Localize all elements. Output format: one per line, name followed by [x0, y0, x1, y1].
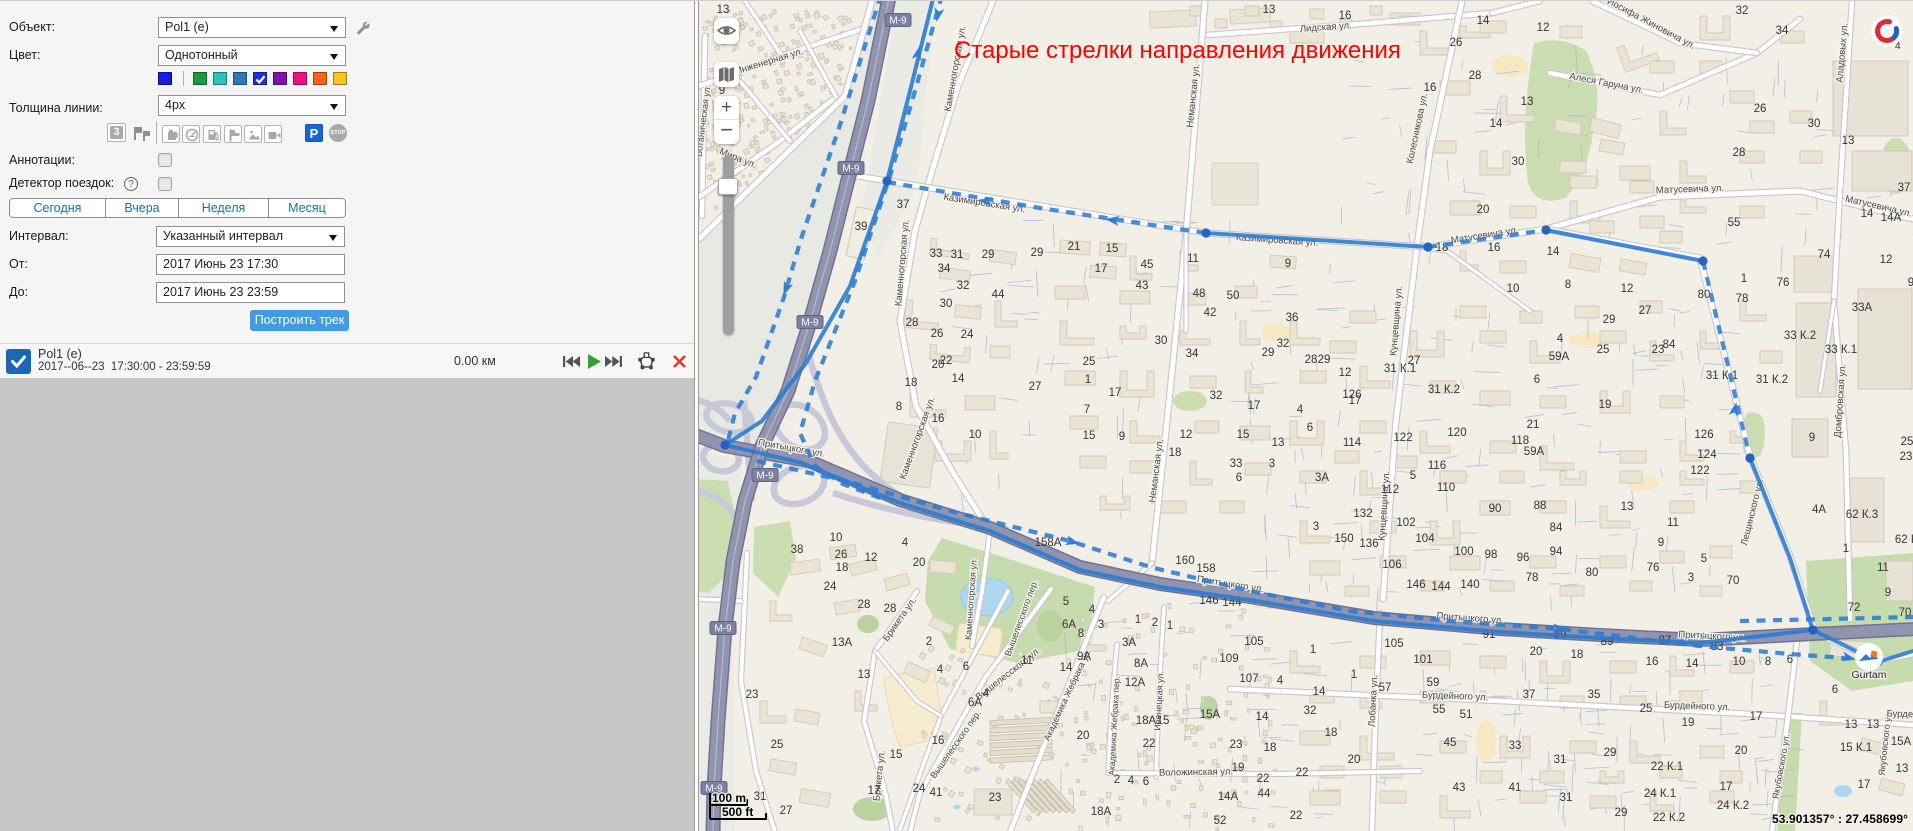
svg-text:6А: 6А [1062, 619, 1076, 631]
svg-text:3: 3 [1688, 572, 1694, 584]
svg-text:1: 1 [1741, 273, 1747, 285]
svg-text:22: 22 [1257, 773, 1270, 785]
svg-text:23: 23 [746, 689, 759, 701]
svg-text:18А: 18А [1136, 715, 1157, 727]
svg-text:29: 29 [1031, 247, 1044, 259]
svg-text:3: 3 [1313, 521, 1319, 533]
svg-text:32: 32 [1210, 390, 1223, 402]
svg-text:36: 36 [1286, 312, 1299, 324]
svg-text:6: 6 [1534, 374, 1540, 386]
svg-text:150: 150 [1334, 533, 1353, 545]
svg-text:22: 22 [1290, 810, 1303, 822]
svg-text:116: 116 [1428, 460, 1446, 472]
svg-text:5: 5 [1701, 553, 1707, 565]
svg-text:126: 126 [1694, 429, 1713, 441]
svg-text:74: 74 [1818, 249, 1831, 261]
svg-text:13: 13 [1263, 4, 1276, 16]
svg-text:12А: 12А [1125, 677, 1146, 689]
svg-text:26: 26 [1450, 37, 1463, 49]
svg-text:31: 31 [1554, 754, 1567, 766]
svg-text:22: 22 [1296, 767, 1309, 779]
svg-text:25: 25 [1083, 356, 1096, 368]
svg-text:13: 13 [1521, 96, 1534, 108]
svg-text:27: 27 [1639, 305, 1652, 317]
svg-text:Бурдейн: Бурдейн [1886, 708, 1913, 720]
svg-text:31 К.1: 31 К.1 [1384, 363, 1416, 375]
svg-text:109: 109 [1219, 653, 1238, 665]
svg-text:24: 24 [824, 581, 837, 593]
svg-text:98: 98 [1485, 549, 1498, 561]
svg-text:140: 140 [1460, 579, 1479, 591]
svg-text:136: 136 [1359, 538, 1378, 550]
svg-text:80: 80 [1586, 567, 1599, 579]
svg-text:33: 33 [930, 248, 943, 260]
svg-text:41: 41 [1509, 782, 1522, 794]
svg-text:122: 122 [1393, 432, 1412, 444]
svg-text:25: 25 [771, 739, 784, 751]
svg-text:4: 4 [1557, 333, 1564, 345]
svg-text:19: 19 [1232, 762, 1245, 774]
svg-text:9: 9 [1809, 432, 1815, 444]
svg-text:1: 1 [1843, 543, 1849, 555]
svg-text:72: 72 [1848, 602, 1861, 614]
svg-text:24 К.1: 24 К.1 [1644, 788, 1676, 800]
svg-text:М-9: М-9 [756, 471, 774, 482]
svg-text:6: 6 [963, 661, 969, 673]
svg-text:76: 76 [1777, 277, 1790, 289]
svg-text:18: 18 [836, 562, 849, 574]
svg-text:114: 114 [1343, 437, 1362, 449]
svg-text:102: 102 [1396, 517, 1415, 529]
svg-text:6: 6 [1832, 684, 1838, 696]
svg-text:Бурдейного ул.: Бурдейного ул. [1664, 700, 1731, 713]
svg-text:144: 144 [1431, 581, 1451, 593]
svg-text:13: 13 [1842, 135, 1855, 147]
svg-text:3А: 3А [1315, 472, 1329, 484]
svg-text:20: 20 [913, 557, 926, 569]
svg-text:32: 32 [957, 280, 970, 292]
svg-text:30: 30 [940, 298, 953, 310]
svg-text:14: 14 [1490, 118, 1503, 130]
svg-text:24: 24 [913, 783, 926, 795]
svg-text:500 ft: 500 ft [722, 805, 753, 819]
svg-text:24 К.2: 24 К.2 [1717, 800, 1749, 812]
svg-text:11: 11 [1877, 562, 1889, 574]
svg-text:29: 29 [982, 249, 995, 261]
svg-text:41: 41 [930, 787, 943, 799]
svg-text:5: 5 [1063, 596, 1069, 608]
svg-text:3А: 3А [1122, 637, 1136, 649]
svg-text:31 К.2: 31 К.2 [1428, 384, 1460, 396]
svg-text:31: 31 [1560, 792, 1573, 804]
svg-text:43: 43 [1453, 782, 1466, 794]
svg-text:10: 10 [830, 532, 843, 544]
svg-text:126: 126 [1342, 389, 1361, 401]
svg-text:70: 70 [1727, 575, 1740, 587]
svg-text:29: 29 [1318, 354, 1331, 366]
svg-text:8: 8 [1078, 628, 1084, 640]
svg-text:110: 110 [1437, 482, 1455, 494]
svg-text:104: 104 [1415, 533, 1435, 545]
svg-text:3: 3 [1269, 458, 1275, 470]
svg-text:9: 9 [1658, 537, 1664, 549]
svg-text:15А: 15А [1891, 736, 1912, 748]
svg-text:12: 12 [1339, 367, 1352, 379]
svg-text:59А: 59А [1524, 446, 1545, 458]
svg-text:11: 11 [1667, 517, 1679, 529]
svg-text:17: 17 [1750, 711, 1763, 723]
svg-text:М-9: М-9 [842, 164, 860, 175]
svg-text:13: 13 [717, 4, 730, 16]
svg-text:Бурдейного ул.: Бурдейного ул. [1422, 690, 1489, 703]
svg-text:14А: 14А [1881, 212, 1902, 224]
svg-text:14: 14 [952, 373, 965, 385]
svg-text:4: 4 [1297, 404, 1304, 416]
svg-text:13: 13 [1621, 501, 1634, 513]
svg-text:4: 4 [1128, 775, 1135, 787]
svg-text:22: 22 [1143, 738, 1156, 750]
svg-text:1: 1 [1135, 614, 1141, 626]
svg-text:17: 17 [1858, 779, 1871, 791]
svg-text:16: 16 [932, 735, 945, 747]
svg-text:84: 84 [1550, 522, 1563, 534]
svg-text:55: 55 [1433, 704, 1446, 716]
svg-text:9: 9 [1885, 587, 1891, 599]
svg-text:59: 59 [1427, 677, 1440, 689]
svg-text:18: 18 [905, 377, 918, 389]
svg-text:13: 13 [1867, 719, 1880, 731]
svg-text:12: 12 [865, 552, 878, 564]
svg-text:28: 28 [1469, 70, 1482, 82]
svg-text:101: 101 [1413, 654, 1432, 666]
svg-text:2: 2 [926, 636, 932, 648]
svg-text:14: 14 [1547, 246, 1560, 258]
svg-text:32: 32 [1736, 5, 1749, 17]
svg-text:44: 44 [1258, 788, 1271, 800]
svg-text:21: 21 [1527, 419, 1540, 431]
svg-text:33: 33 [1509, 740, 1522, 752]
svg-text:19: 19 [1682, 717, 1695, 729]
svg-text:32: 32 [1277, 338, 1290, 350]
svg-text:30: 30 [1512, 156, 1525, 168]
svg-text:33: 33 [1230, 458, 1243, 470]
svg-text:29: 29 [1262, 347, 1275, 359]
svg-text:37: 37 [1898, 182, 1911, 194]
svg-text:19: 19 [1599, 399, 1612, 411]
svg-text:29: 29 [1615, 807, 1628, 819]
svg-text:118: 118 [1511, 435, 1529, 447]
svg-text:30: 30 [1155, 335, 1168, 347]
svg-text:4: 4 [1895, 41, 1901, 52]
svg-text:78: 78 [1736, 293, 1749, 305]
svg-text:28: 28 [884, 603, 897, 615]
svg-text:28: 28 [906, 317, 919, 329]
svg-text:28: 28 [858, 599, 871, 611]
svg-text:29: 29 [1603, 314, 1616, 326]
svg-text:17: 17 [1720, 781, 1733, 793]
svg-text:4А: 4А [1812, 504, 1826, 516]
svg-text:11: 11 [1021, 655, 1033, 667]
svg-text:52: 52 [1214, 815, 1227, 827]
svg-text:13: 13 [1272, 437, 1285, 449]
svg-text:18: 18 [1571, 649, 1584, 661]
svg-text:31: 31 [951, 249, 964, 261]
svg-text:90: 90 [1489, 503, 1502, 515]
svg-text:120: 120 [1447, 427, 1466, 439]
svg-text:160: 160 [1175, 555, 1194, 567]
svg-text:78: 78 [1526, 572, 1539, 584]
svg-text:59А: 59А [1549, 351, 1570, 363]
svg-text:105: 105 [1384, 638, 1403, 650]
svg-text:33 К.2: 33 К.2 [1784, 330, 1816, 342]
svg-text:26: 26 [1754, 103, 1767, 115]
svg-text:1: 1 [1351, 669, 1357, 681]
svg-text:16: 16 [1488, 242, 1501, 254]
svg-text:31: 31 [754, 791, 767, 803]
svg-text:4: 4 [902, 537, 909, 549]
svg-text:100: 100 [1454, 546, 1473, 558]
svg-text:34: 34 [1186, 348, 1199, 360]
svg-text:35: 35 [1588, 689, 1601, 701]
svg-text:23: 23 [1230, 739, 1243, 751]
svg-text:34: 34 [1776, 25, 1789, 37]
svg-text:16: 16 [1424, 82, 1437, 94]
svg-text:27: 27 [780, 805, 793, 817]
svg-text:14: 14 [1060, 662, 1073, 674]
svg-text:146: 146 [1406, 579, 1425, 591]
svg-text:11: 11 [1187, 253, 1199, 265]
svg-text:6А: 6А [968, 697, 982, 709]
svg-text:106: 106 [1382, 559, 1401, 571]
svg-text:31 К.2: 31 К.2 [1756, 374, 1788, 386]
svg-text:105: 105 [1244, 636, 1263, 648]
svg-text:51: 51 [1460, 709, 1473, 721]
svg-text:20: 20 [1348, 754, 1361, 766]
svg-text:158: 158 [1196, 563, 1215, 575]
svg-text:15: 15 [1106, 243, 1119, 255]
svg-text:50: 50 [1227, 290, 1240, 302]
svg-text:4: 4 [1277, 675, 1284, 687]
svg-text:20: 20 [1530, 646, 1543, 658]
svg-text:48: 48 [1193, 288, 1206, 300]
svg-text:9: 9 [1119, 431, 1125, 443]
svg-text:14: 14 [1477, 15, 1490, 27]
svg-text:1: 1 [1085, 374, 1091, 386]
svg-text:158А: 158А [1035, 537, 1062, 549]
svg-text:3: 3 [1098, 619, 1104, 631]
svg-text:16: 16 [1339, 10, 1352, 22]
svg-text:94: 94 [1550, 546, 1563, 558]
svg-text:132: 132 [1353, 508, 1372, 520]
svg-text:4: 4 [983, 688, 990, 700]
svg-text:16: 16 [932, 413, 945, 425]
svg-text:6: 6 [1143, 776, 1149, 788]
svg-text:М-9: М-9 [714, 624, 732, 635]
svg-text:24: 24 [961, 329, 974, 341]
svg-text:15 К.1: 15 К.1 [1840, 742, 1872, 754]
svg-text:27: 27 [1029, 381, 1042, 393]
svg-text:18: 18 [1325, 727, 1338, 739]
svg-text:22: 22 [940, 355, 953, 367]
svg-text:9А: 9А [1077, 651, 1091, 663]
svg-text:84: 84 [1663, 339, 1676, 351]
svg-text:21: 21 [1068, 241, 1081, 253]
svg-text:17: 17 [1248, 400, 1261, 412]
svg-text:29: 29 [1604, 747, 1617, 759]
svg-text:45: 45 [1444, 737, 1457, 749]
svg-text:12: 12 [1537, 22, 1550, 34]
svg-text:53.901357° : 27.458699°: 53.901357° : 27.458699° [1772, 812, 1908, 826]
svg-text:107: 107 [1239, 673, 1258, 685]
svg-text:33А: 33А [1852, 302, 1873, 314]
svg-text:25: 25 [1901, 436, 1913, 448]
svg-text:14: 14 [1861, 208, 1874, 220]
svg-text:34: 34 [938, 263, 951, 275]
svg-text:55: 55 [1728, 217, 1741, 229]
svg-text:45: 45 [1141, 259, 1154, 271]
svg-text:26: 26 [931, 328, 944, 340]
svg-text:88: 88 [1534, 500, 1547, 512]
svg-text:14А: 14А [1218, 791, 1239, 803]
svg-text:96: 96 [1517, 552, 1530, 564]
svg-text:15: 15 [1157, 715, 1170, 727]
svg-text:М-9: М-9 [889, 16, 907, 27]
svg-text:9: 9 [1908, 277, 1913, 289]
svg-text:39: 39 [855, 221, 868, 233]
svg-text:13: 13 [858, 669, 871, 681]
svg-text:17: 17 [1095, 263, 1108, 275]
svg-text:20: 20 [1477, 204, 1490, 216]
svg-text:1: 1 [1167, 620, 1173, 632]
svg-text:62 К.3: 62 К.3 [1846, 509, 1878, 521]
svg-text:13А: 13А [832, 637, 853, 649]
svg-text:17: 17 [1109, 387, 1122, 399]
svg-text:5: 5 [1410, 470, 1416, 482]
svg-text:76: 76 [1647, 562, 1660, 574]
svg-text:30: 30 [1808, 118, 1821, 130]
svg-text:33 К.1: 33 К.1 [1825, 344, 1857, 356]
svg-text:13: 13 [1845, 719, 1858, 731]
svg-text:8: 8 [896, 401, 902, 413]
svg-text:22 К.2: 22 К.2 [1653, 812, 1685, 824]
svg-text:6: 6 [1307, 422, 1313, 434]
svg-text:9: 9 [1285, 258, 1291, 270]
svg-text:2: 2 [1114, 774, 1120, 786]
svg-text:10: 10 [1507, 283, 1520, 295]
svg-text:80: 80 [1698, 289, 1711, 301]
svg-text:18: 18 [1169, 447, 1182, 459]
svg-text:12: 12 [1880, 254, 1893, 266]
svg-text:57: 57 [1379, 682, 1392, 694]
svg-text:8А: 8А [1134, 658, 1148, 670]
svg-text:22 К.1: 22 К.1 [1651, 761, 1683, 773]
svg-text:12: 12 [1621, 283, 1634, 295]
svg-text:4: 4 [1089, 604, 1096, 616]
svg-text:26: 26 [835, 549, 848, 561]
svg-text:Старые стрелки направления дви: Старые стрелки направления движения [954, 37, 1401, 64]
svg-text:12: 12 [1180, 429, 1193, 441]
svg-text:100 m: 100 m [712, 791, 746, 805]
svg-text:44: 44 [992, 289, 1005, 301]
svg-text:62 К.1: 62 К.1 [1895, 534, 1913, 546]
svg-text:23: 23 [1900, 451, 1913, 463]
svg-text:124: 124 [1697, 449, 1717, 461]
svg-text:32: 32 [1304, 705, 1317, 717]
svg-text:6: 6 [1236, 472, 1242, 484]
svg-text:20: 20 [1077, 730, 1090, 742]
svg-text:18: 18 [1264, 742, 1277, 754]
svg-text:25: 25 [1640, 703, 1653, 715]
svg-text:14: 14 [1313, 686, 1326, 698]
svg-text:23: 23 [989, 792, 1002, 804]
svg-text:13: 13 [1896, 763, 1909, 775]
svg-text:37: 37 [1523, 689, 1536, 701]
svg-text:Воложинская ул.: Воложинская ул. [1159, 766, 1233, 778]
svg-text:37: 37 [897, 199, 910, 211]
svg-text:112: 112 [1381, 484, 1399, 496]
svg-text:15: 15 [890, 749, 903, 761]
svg-text:2: 2 [1152, 617, 1158, 629]
svg-text:15А: 15А [1200, 709, 1221, 721]
svg-text:7: 7 [1084, 404, 1090, 416]
svg-text:Gurtam: Gurtam [1851, 669, 1886, 681]
svg-text:42: 42 [1204, 307, 1217, 319]
svg-text:М-9: М-9 [801, 318, 819, 329]
svg-text:10: 10 [1733, 656, 1746, 668]
svg-text:14: 14 [1256, 711, 1269, 723]
svg-text:28: 28 [1305, 354, 1318, 366]
svg-text:122: 122 [1690, 465, 1709, 477]
svg-text:8: 8 [1565, 279, 1571, 291]
svg-text:10: 10 [969, 429, 982, 441]
svg-text:25: 25 [1597, 344, 1610, 356]
svg-text:20: 20 [1735, 745, 1748, 757]
svg-text:15: 15 [1237, 429, 1250, 441]
svg-text:16: 16 [1646, 656, 1659, 668]
svg-text:14: 14 [1686, 658, 1699, 670]
svg-text:8: 8 [1765, 656, 1771, 668]
svg-text:28: 28 [1733, 147, 1746, 159]
svg-text:15: 15 [1083, 430, 1096, 442]
svg-text:17: 17 [868, 785, 881, 797]
svg-text:1: 1 [1310, 644, 1316, 656]
svg-text:4: 4 [937, 664, 944, 676]
svg-text:43: 43 [1136, 280, 1149, 292]
svg-text:18А: 18А [1091, 806, 1112, 818]
svg-text:38: 38 [791, 544, 804, 556]
